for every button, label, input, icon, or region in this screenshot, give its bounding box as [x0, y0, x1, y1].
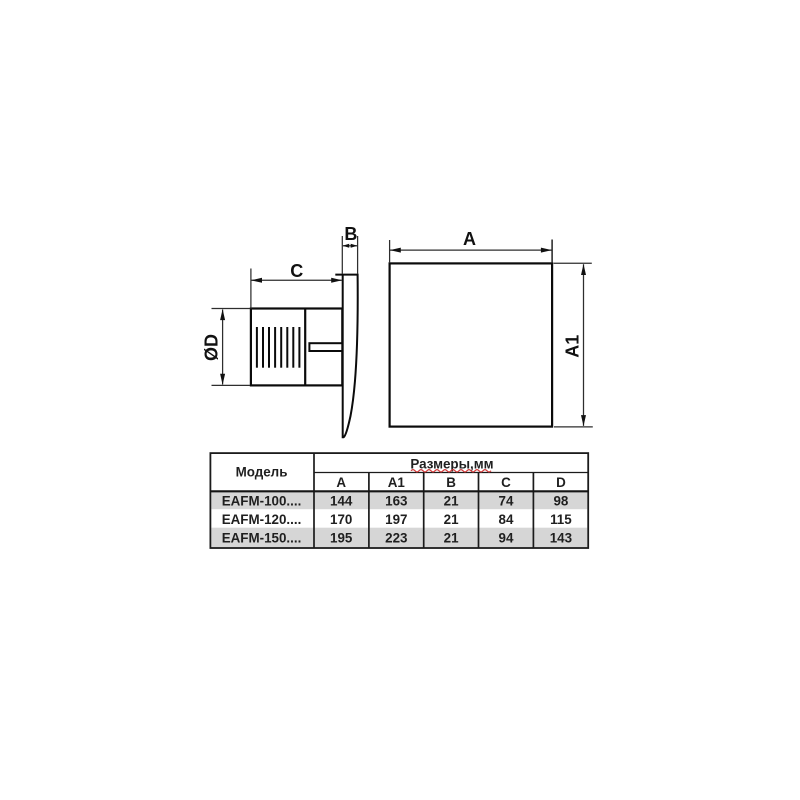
- svg-text:A1: A1: [562, 335, 582, 358]
- svg-text:143: 143: [550, 531, 572, 546]
- svg-text:B: B: [446, 475, 456, 490]
- svg-text:84: 84: [499, 512, 514, 527]
- svg-text:C: C: [290, 261, 303, 281]
- svg-text:EAFM-100....: EAFM-100....: [222, 494, 302, 509]
- svg-text:170: 170: [330, 512, 352, 527]
- svg-text:21: 21: [444, 494, 459, 509]
- svg-text:115: 115: [550, 512, 572, 527]
- svg-text:ØD: ØD: [201, 334, 221, 361]
- svg-text:21: 21: [444, 512, 459, 527]
- svg-text:98: 98: [553, 494, 568, 509]
- svg-text:21: 21: [444, 531, 459, 546]
- svg-text:197: 197: [385, 512, 407, 527]
- svg-text:Модель: Модель: [236, 465, 288, 480]
- svg-text:EAFM-150....: EAFM-150....: [222, 531, 302, 546]
- svg-text:163: 163: [385, 494, 407, 509]
- svg-text:A: A: [336, 475, 346, 490]
- svg-text:EAFM-120....: EAFM-120....: [222, 512, 302, 527]
- svg-text:94: 94: [499, 531, 514, 546]
- svg-text:195: 195: [330, 531, 353, 546]
- svg-text:B: B: [344, 224, 357, 244]
- svg-text:A1: A1: [388, 475, 406, 490]
- svg-text:C: C: [501, 475, 511, 490]
- svg-text:A: A: [463, 229, 476, 249]
- svg-text:223: 223: [385, 531, 407, 546]
- svg-text:D: D: [556, 475, 566, 490]
- svg-text:144: 144: [330, 494, 353, 509]
- svg-text:74: 74: [499, 494, 514, 509]
